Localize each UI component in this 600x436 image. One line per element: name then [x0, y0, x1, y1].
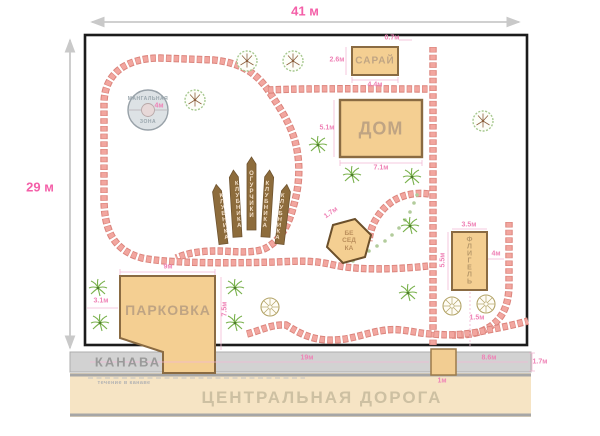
ditch-dim-right: 8.6м [482, 355, 497, 362]
bbq-zone-diameter: 4м [154, 103, 163, 110]
shed-label: САРАЙ [355, 56, 394, 67]
annex-dim-right: 4м [491, 251, 500, 258]
tree-icon [283, 51, 303, 71]
tree-icon [473, 111, 493, 131]
site-plan-drawing [0, 0, 600, 436]
plot-height-label: 29 м [26, 180, 54, 195]
annex-dim-top: 3.5м [462, 222, 477, 229]
annex-label: ФЛИГЕЛЬ [466, 237, 473, 286]
site-plan: 41 м 29 м МАНГАЛЬНАЯ ЗОНА 4м САРАЙ 0.7м … [0, 0, 600, 436]
house-dim-left: 5.1м [320, 125, 335, 132]
bbq-zone-label-top: МАНГАЛЬНАЯ [128, 96, 169, 102]
tree-icon [185, 90, 205, 110]
bbq-zone-label-bottom: ЗОНА [140, 119, 156, 125]
bed-label: ОГУРЧИКИ [249, 171, 255, 219]
ditch-bridge [431, 349, 456, 375]
ditch-dim-width: 1.7м [533, 359, 548, 366]
shed-dim-left: 2.6м [330, 57, 345, 64]
bridge-dim: 1м [437, 378, 446, 385]
shed-dim-bottom: 4.4м [368, 82, 383, 89]
annex-dim-left: 5.5м [440, 253, 447, 268]
gazebo-label: БЕ СЕД КА [342, 230, 356, 252]
road-label: ЦЕНТРАЛЬНАЯ ДОРОГА [202, 388, 443, 408]
plot-width-label: 41 м [291, 4, 319, 19]
parking-label: ПАРКОВКА [125, 302, 211, 318]
annex-dim-bottom: 1.5м [470, 315, 485, 322]
tree-icon [237, 51, 257, 71]
shed-dim-top: 0.7м [385, 35, 400, 42]
ditch-label: КАНАВА [95, 355, 161, 370]
shrub-icon [477, 295, 495, 313]
parking-dim-right: 7.5м [222, 302, 229, 317]
ditch-dim-left: 19м [301, 355, 314, 362]
parking-dim-left: 3.1м [94, 298, 109, 305]
parking-dim-top: 9м [163, 264, 172, 271]
ditch-flow-label: течение в канаве [97, 380, 150, 386]
house-label: ДОМ [359, 119, 404, 140]
shrub-icon [261, 298, 279, 316]
shrub-icon [443, 297, 461, 315]
house-dim-bottom: 7.1м [374, 165, 389, 172]
